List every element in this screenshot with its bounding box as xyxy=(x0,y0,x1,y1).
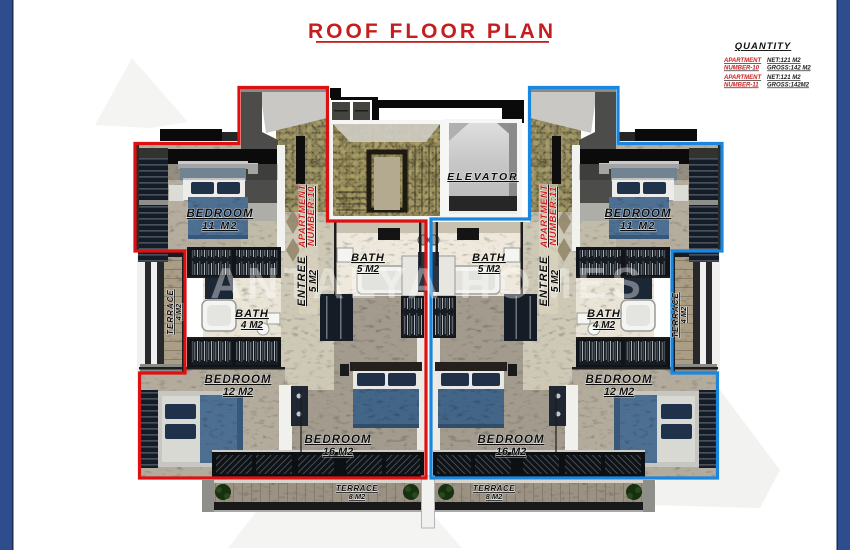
svg-text:5 M2: 5 M2 xyxy=(550,269,561,292)
svg-text:NET:121 M2: NET:121 M2 xyxy=(767,58,801,64)
svg-text:BEDROOM: BEDROOM xyxy=(204,374,271,386)
svg-text:ENTREE: ENTREE xyxy=(538,256,550,307)
svg-text:4 M2: 4 M2 xyxy=(174,303,183,322)
svg-text:5 M2: 5 M2 xyxy=(308,269,319,292)
svg-text:4 M2: 4 M2 xyxy=(679,306,688,325)
svg-text:BATH: BATH xyxy=(472,252,506,264)
svg-text:APARTMENT: APARTMENT xyxy=(723,58,762,64)
svg-text:5 M2: 5 M2 xyxy=(478,264,501,275)
svg-text:NUMBER-10: NUMBER-10 xyxy=(724,66,760,72)
svg-text:NET:121 M2: NET:121 M2 xyxy=(767,75,801,81)
svg-text:ROOF FLOOR PLAN: ROOF FLOOR PLAN xyxy=(308,20,556,43)
svg-text:11 M2: 11 M2 xyxy=(620,220,656,232)
svg-text:GROSS:142 M2: GROSS:142 M2 xyxy=(767,66,811,72)
svg-text:BATH: BATH xyxy=(587,308,621,320)
svg-text:12 M2: 12 M2 xyxy=(223,386,254,398)
svg-text:BEDROOM: BEDROOM xyxy=(604,208,671,220)
svg-text:BEDROOM: BEDROOM xyxy=(477,434,544,446)
svg-text:GROSS:142M2: GROSS:142M2 xyxy=(767,83,810,89)
svg-text:16 M2: 16 M2 xyxy=(496,446,527,458)
svg-text:QUANTITY: QUANTITY xyxy=(735,41,792,52)
svg-text:11 M2: 11 M2 xyxy=(202,220,238,232)
svg-text:APARTMENT: APARTMENT xyxy=(723,75,762,81)
svg-text:BEDROOM: BEDROOM xyxy=(304,434,371,446)
svg-text:ANTALYA HOMES: ANTALYA HOMES xyxy=(210,259,646,308)
svg-text:BATH: BATH xyxy=(351,252,385,264)
svg-text:NUMBER:10: NUMBER:10 xyxy=(306,186,317,246)
svg-text:5 M2: 5 M2 xyxy=(357,264,380,275)
svg-text:12 M2: 12 M2 xyxy=(604,386,635,398)
svg-text:16 M2: 16 M2 xyxy=(323,446,354,458)
svg-text:NUMBER-11: NUMBER-11 xyxy=(724,83,759,89)
svg-text:4 M2: 4 M2 xyxy=(240,320,264,331)
svg-text:BEDROOM: BEDROOM xyxy=(186,208,253,220)
svg-text:NUMBER:11: NUMBER:11 xyxy=(548,186,559,245)
svg-text:8 M2: 8 M2 xyxy=(349,492,367,501)
svg-text:ELEVATOR: ELEVATOR xyxy=(447,171,518,183)
svg-text:4 M2: 4 M2 xyxy=(592,320,616,331)
svg-text:8 M2: 8 M2 xyxy=(486,492,504,501)
svg-text:ENTREE: ENTREE xyxy=(296,256,308,307)
svg-text:BEDROOM: BEDROOM xyxy=(585,374,652,386)
svg-text:BATH: BATH xyxy=(235,308,269,320)
